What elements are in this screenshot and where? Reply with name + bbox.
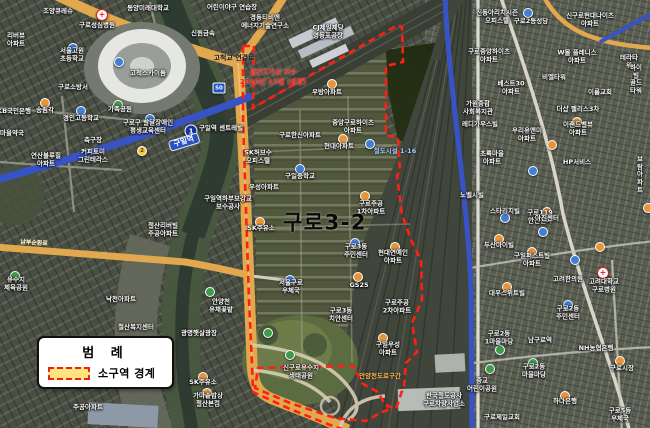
map-label: 구일우성 아파트 xyxy=(376,341,400,356)
map-label: 구로주공 1차아파트 xyxy=(357,200,385,215)
park-tree-icon xyxy=(528,358,538,368)
district-label: 구로3-2 xyxy=(283,211,367,236)
park-green xyxy=(242,315,358,405)
park-tree-icon xyxy=(495,345,505,355)
annotation-notice-line1: 경인고가상 보수 xyxy=(249,68,297,76)
public-marker-icon xyxy=(68,43,78,53)
public-marker-icon xyxy=(76,106,86,116)
map-label: 동양미래대학교 xyxy=(127,5,169,13)
park-tree-icon xyxy=(205,287,215,297)
legend-swatch-boundary xyxy=(48,367,90,380)
map-label: 철도시설 1-16 xyxy=(374,148,416,156)
hospital-cross-icon: + xyxy=(96,9,108,21)
map-label: 철산리버빌 주공아파트 xyxy=(148,222,178,237)
map-label: 아진센터 xyxy=(535,215,559,223)
public-marker-icon xyxy=(295,164,305,174)
map-label: 조양큐레슈 xyxy=(43,8,73,16)
annotation-notice-line2: 2025년 10월 (예정) xyxy=(240,78,306,86)
map-label: 낙천아파트 xyxy=(106,296,136,304)
poi-marker-icon xyxy=(643,203,650,213)
hospital-cross-icon: + xyxy=(597,267,609,279)
poi-marker-icon xyxy=(547,140,557,150)
map-label: 구로구 발달장애인 평생교육센터 xyxy=(123,119,173,134)
poi-marker-icon xyxy=(360,191,370,201)
map-label: SK주유소 xyxy=(189,379,217,387)
map-label: 구로성심병원 xyxy=(79,22,115,30)
map-label: CJ제일제당 영등포공장 xyxy=(312,24,343,39)
poi-marker-icon xyxy=(572,117,582,127)
map-label: 우리유앤미 아파트 xyxy=(512,127,542,142)
dome-plaza xyxy=(84,22,200,114)
map-label: 보람아파트 xyxy=(635,156,645,194)
subway-line1 xyxy=(0,96,252,180)
map-label: KB국민은행 xyxy=(0,108,31,116)
map-label: 고려한의원 xyxy=(553,276,583,284)
river-lower xyxy=(182,235,193,428)
map-label: 어린이야구 연습장 xyxy=(207,4,257,12)
boundary-line xyxy=(253,25,422,421)
map-label: 커피토미 그린테라스 xyxy=(78,148,108,163)
public-marker-icon xyxy=(365,139,375,149)
map-label: 베스트30 아파트 xyxy=(498,80,525,95)
road-nambusunhwan xyxy=(0,247,252,276)
map-label: 안양천도로구간 xyxy=(359,373,401,381)
map-label: 고려대학교 구로병원 xyxy=(589,278,619,293)
rail-yard xyxy=(332,0,472,428)
subway-line1-badge-icon: 1 xyxy=(185,125,198,138)
park-tree-icon xyxy=(113,100,123,110)
map-label: W몰 플레니스 아파트 xyxy=(557,49,596,64)
map-label: 두산마이빌 xyxy=(484,242,514,250)
map-label: 구로제일교회 xyxy=(484,414,520,422)
public-marker-icon xyxy=(285,275,295,285)
map-label: 우성아파트 xyxy=(249,184,279,192)
map-label: 철산복지센터 xyxy=(118,324,154,332)
map-label: 더샵 팰리스3차 xyxy=(557,106,600,114)
map-label: 구로3동 주민센터 xyxy=(344,243,368,258)
map-label: 테라타워 xyxy=(619,54,640,69)
poi-marker-icon xyxy=(378,333,388,343)
legend-title: 범 례 xyxy=(39,342,172,361)
gocheok-dome xyxy=(98,29,186,103)
map-label: 가원종합 사회복지관 xyxy=(463,100,493,115)
poi-marker-icon xyxy=(595,242,605,252)
bus-stop-badge-icon: 2 xyxy=(137,146,147,156)
road-gyeongin xyxy=(238,63,348,428)
rail-corridor xyxy=(228,6,445,124)
map-label: 구일역하부보강교 보수공사 xyxy=(204,195,252,210)
poi-marker-icon xyxy=(202,388,212,398)
map-label: 경인고등학교 xyxy=(63,115,99,123)
map-label: 신구로유수지 생태공원 xyxy=(283,364,319,379)
annotation-road-link: 고척교 연결로 xyxy=(213,54,254,62)
map-label: GS25 xyxy=(349,282,368,290)
boundary-line xyxy=(243,46,345,428)
road-gocheok-bridge xyxy=(50,0,238,63)
map-label: 현대아파트 xyxy=(324,143,354,151)
poi-marker-icon xyxy=(560,391,570,401)
map-label: 노벨시빌 xyxy=(460,192,484,200)
public-marker-icon xyxy=(523,8,533,18)
map-label: 서울고원 초등학교 xyxy=(60,47,84,62)
poi-marker-icon xyxy=(527,247,537,257)
park-tree-icon xyxy=(263,328,273,338)
map-label: 유수지 체육공원 xyxy=(4,276,28,291)
map-label: 안양천 유채꽃밭 xyxy=(209,298,233,313)
legend-row: 소구역 경계 xyxy=(39,361,172,381)
public-marker-icon xyxy=(114,57,124,67)
map-label: HP서비스 xyxy=(563,159,591,167)
park-tree-icon xyxy=(10,271,20,281)
poi-marker-icon xyxy=(542,207,552,217)
legend-item-label: 소구역 경계 xyxy=(98,365,155,381)
riverbed xyxy=(136,240,152,428)
map-label: 구로소방서 xyxy=(58,84,88,92)
poi-marker-icon xyxy=(502,282,512,292)
map-label: 구로5동 우체국 xyxy=(609,407,631,422)
satellite-texture-east xyxy=(425,0,650,428)
map-label: 중교 어린이공원 xyxy=(467,377,497,392)
map-label: 가마솥밥상 철산본점 xyxy=(193,392,223,407)
map-label: 한국철도공사 구로차량사업소 xyxy=(423,392,465,407)
map-label: 중앙구로하이츠 아파트 xyxy=(332,119,374,134)
poi-marker-icon xyxy=(353,272,363,282)
map-label: 구로3동 치안센터 xyxy=(329,307,353,322)
map-label: 하이빌 골드타워 xyxy=(629,65,643,96)
poi-marker-icon xyxy=(390,242,400,252)
poi-marker-icon xyxy=(615,356,625,366)
river-upper xyxy=(167,0,222,235)
map-label: 스타리치빌 xyxy=(490,208,520,216)
public-marker-icon xyxy=(350,238,360,248)
road-label: 남부순환로 xyxy=(20,239,48,248)
map-label: 마을약국 xyxy=(0,130,24,138)
map-label: 고척스카이돔 xyxy=(130,70,166,78)
park-tree-icon xyxy=(285,350,295,360)
public-marker-icon xyxy=(563,300,573,310)
map-label: 가족공원 xyxy=(108,106,132,114)
route-shield-icon: 50 xyxy=(213,83,226,94)
map-label: 구로2동 1마을마당 xyxy=(485,330,513,345)
map-label: 신원금속 xyxy=(191,30,215,38)
poi-marker-icon xyxy=(255,217,265,227)
map-label: 구로한신아파트 xyxy=(279,132,321,140)
map-label: 구로시장 xyxy=(610,365,634,373)
rail-line-east xyxy=(445,0,472,428)
poi-marker-icon xyxy=(40,98,50,108)
public-marker-icon xyxy=(570,255,580,265)
map-label: 남구로역 xyxy=(528,337,552,345)
map-label: 경동티비엔 에너지기술연구소 xyxy=(241,14,289,29)
public-marker-icon xyxy=(538,227,548,237)
map-label: 대우스위트빌 xyxy=(489,290,525,298)
map-label: 비엘타워 xyxy=(542,74,566,82)
map-label: 구일역 센트레빌 xyxy=(199,125,243,133)
map-canvas: ++1502 구로3-2고척교 연결로경인고가상 보수2025년 10월 (예정… xyxy=(0,0,650,428)
map-label: 초록마을 아파트 xyxy=(480,150,504,165)
map-label: 신동아리치시즌 오피스텔 xyxy=(476,9,518,24)
map-label: 현대연예인 아파트 xyxy=(378,249,408,264)
poi-marker-icon xyxy=(198,372,208,382)
poi-marker-icon xyxy=(494,234,504,244)
map-label: 구일퍼스트빌 아파트 xyxy=(514,252,550,267)
map-label: 우방아파트 xyxy=(312,89,342,97)
public-marker-icon xyxy=(528,166,538,176)
map-label: 서울구로 우체국 xyxy=(279,279,303,294)
public-marker-icon xyxy=(500,213,510,223)
river-banks xyxy=(167,0,222,428)
map-label: 리버뷰 아파트 xyxy=(7,32,25,47)
poi-marker-icon xyxy=(327,79,337,89)
legend: 범 례 소구역 경계 xyxy=(37,336,174,389)
map-label: SK주유소 xyxy=(247,225,275,233)
station-label-guil: 구일역 xyxy=(168,132,201,151)
public-marker-icon xyxy=(145,114,155,124)
map-label: 구로중앙하이츠 아파트 xyxy=(468,48,510,63)
map-label: 신구로현대나이츠 아파트 xyxy=(566,12,614,27)
park-tree-icon xyxy=(485,364,495,374)
map-label: NH농협은행 xyxy=(579,345,614,353)
map-label: 연산블루힐 아파트 xyxy=(31,152,61,167)
map-label: 구일중학교 xyxy=(285,173,315,181)
map-label: 주공아파트 xyxy=(73,404,103,412)
map-label: 구로2동성당 xyxy=(514,18,548,26)
map-label: 이랜드벨뷰 아파트 xyxy=(563,121,593,136)
map-label: 구로2동 마을마당 xyxy=(522,363,546,378)
map-label: 구로119 안전센터 xyxy=(527,209,553,224)
map-label: 구로주공 2차아파트 xyxy=(383,299,411,314)
map-label: 구로2동 주민센터 xyxy=(556,305,580,320)
map-label: 송림각 xyxy=(36,107,54,115)
map-label: 하나은행 xyxy=(553,398,577,406)
map-label: 레디가우스빌 xyxy=(462,121,498,129)
map-label: 축구장 xyxy=(84,137,102,145)
map-label: 이룸교회 xyxy=(588,89,612,97)
map-label: SK허브수 오피스텔 xyxy=(244,149,272,164)
map-label: 광명햇살광장 xyxy=(181,330,217,338)
poi-marker-icon xyxy=(338,134,348,144)
